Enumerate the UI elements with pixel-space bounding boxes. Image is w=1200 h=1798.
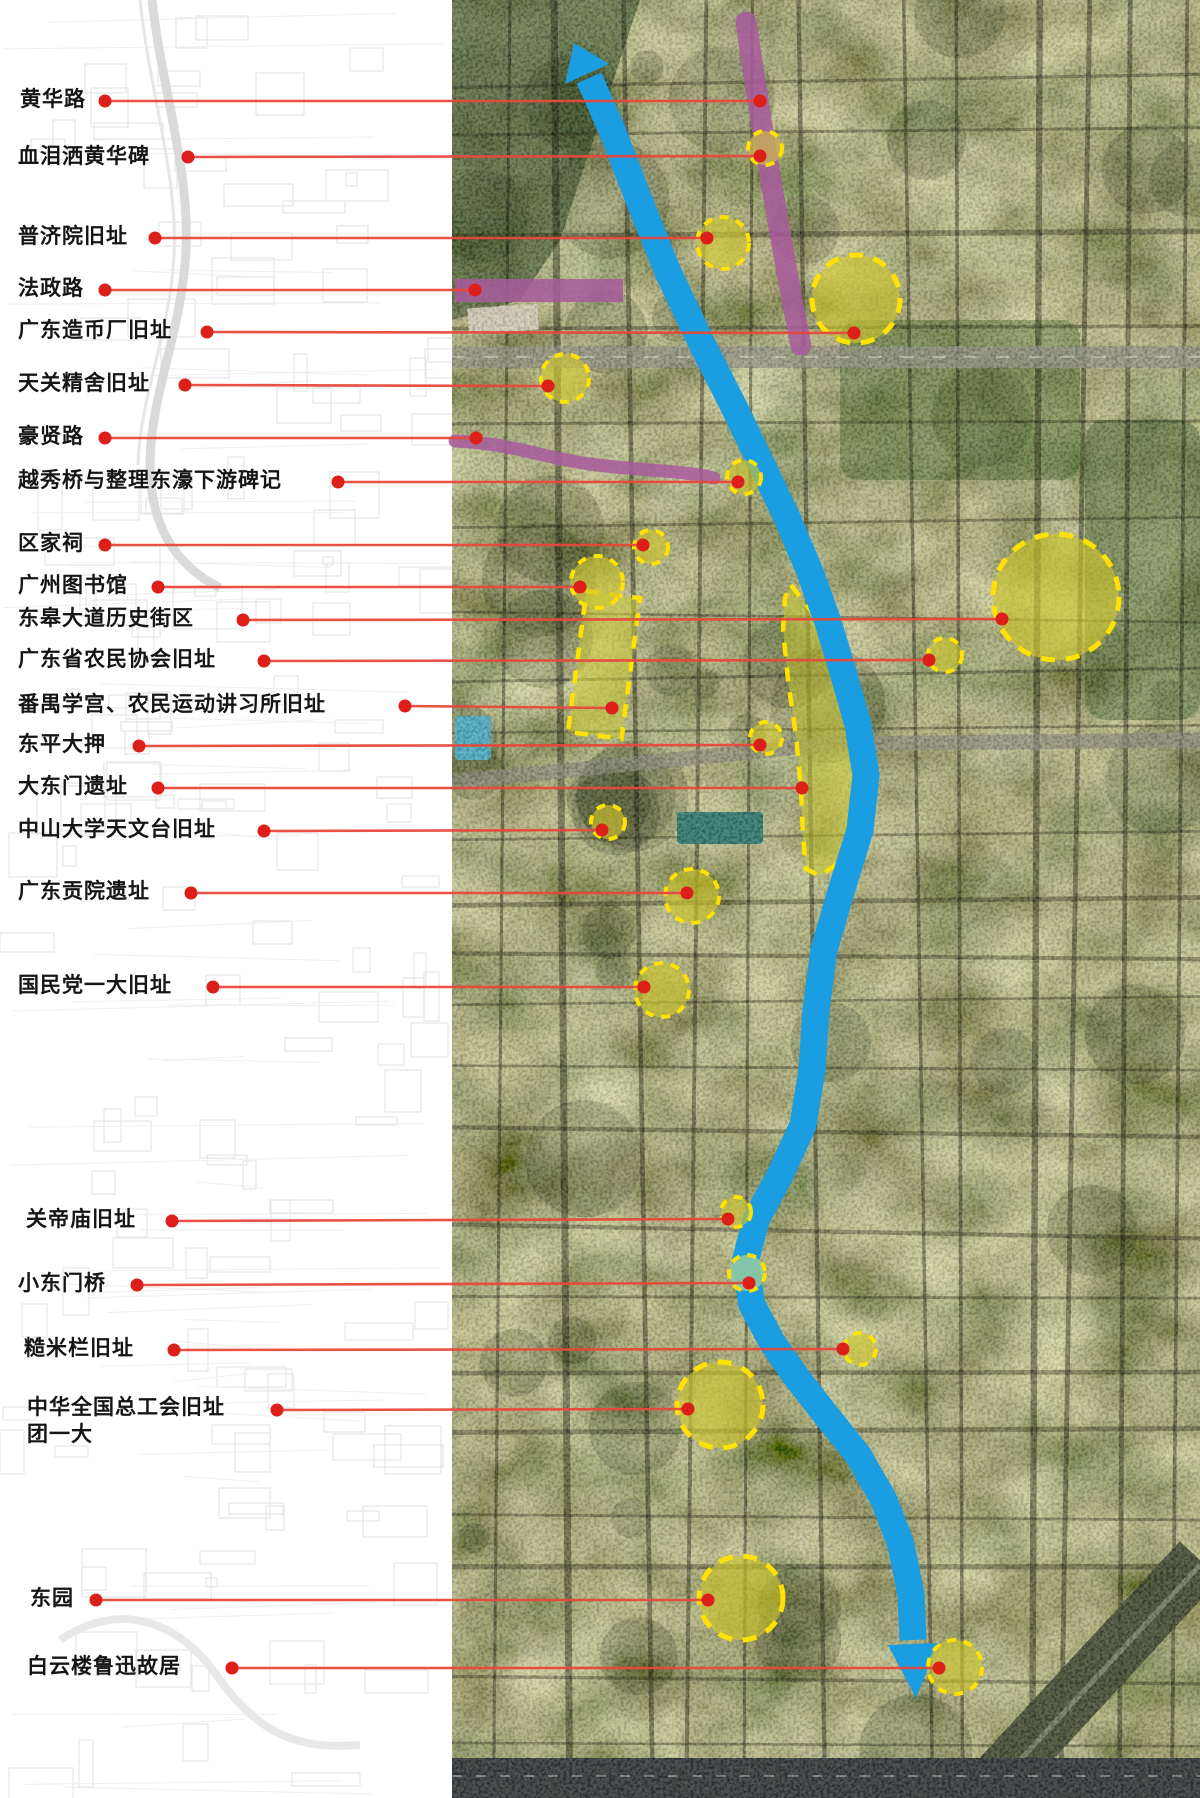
leader-line-xuelei-sa-huanghua-stele	[188, 156, 760, 157]
map-label-sysu-observatory-site: 中山大学天文台旧址	[18, 816, 216, 843]
label-dot-xiaodongmen-bridge	[131, 1279, 144, 1292]
sketch-line	[70, 563, 439, 564]
label-dot-haoxian-road	[99, 432, 112, 445]
map-label-tianguan-jingshe-site: 天关精舍旧址	[18, 370, 150, 397]
map-label-donggao-avenue-historic-district: 东皋大道历史街区	[18, 605, 194, 632]
leader-line-tianguan-jingshe-site	[185, 385, 548, 386]
map-label-caomilan-site: 糙米栏旧址	[24, 1335, 134, 1362]
leader-line-guangdong-peasant-association-site	[264, 660, 929, 661]
target-dot-oujia-ancestral-hall	[637, 539, 650, 552]
label-dot-baiyunlou-luxun-residence	[226, 1662, 239, 1675]
target-dot-fazheng-road	[469, 284, 482, 297]
target-dot-caomilan-site	[837, 1343, 850, 1356]
target-dot-baiyunlou-luxun-residence	[933, 1662, 946, 1675]
target-dot-guangdong-mint-site	[848, 327, 861, 340]
label-dot-dadongmen-ruins	[152, 782, 165, 795]
target-dot-kmt-first-congress-site	[638, 981, 651, 994]
target-dot-dongping-pawnshop	[754, 739, 767, 752]
map-graphic	[0, 0, 1200, 1798]
target-dot-guangdong-gongyuan-ruins	[681, 887, 694, 900]
label-dot-sysu-observatory-site	[258, 825, 271, 838]
map-label-haoxian-road: 豪贤路	[18, 423, 84, 450]
map-label-kmt-first-congress-site: 国民党一大旧址	[18, 972, 172, 999]
label-dot-yuexiu-bridge-stele	[332, 476, 345, 489]
label-dot-guangdong-mint-site	[201, 326, 214, 339]
label-dot-tianguan-jingshe-site	[179, 379, 192, 392]
label-dot-guangzhou-library	[152, 581, 165, 594]
leader-line-sysu-observatory-site	[264, 830, 602, 831]
map-label-xuelei-sa-huanghua-stele: 血泪洒黄华碑	[18, 143, 150, 170]
map-label-fazheng-road: 法政路	[18, 275, 84, 302]
leader-line-acftu-site	[277, 1409, 688, 1410]
target-dot-tianguan-jingshe-site	[542, 380, 555, 393]
map-label-baiyunlou-luxun-residence: 白云楼鲁迅故居	[27, 1653, 181, 1680]
map-label-guangdong-gongyuan-ruins: 广东贡院遗址	[18, 878, 150, 905]
map-label-acftu-site: 中华全国总工会旧址团一大	[27, 1394, 225, 1448]
label-dot-caomilan-site	[168, 1344, 181, 1357]
leader-line-caomilan-site	[174, 1349, 843, 1350]
map-label-guangdong-peasant-association-site: 广东省农民协会旧址	[18, 646, 216, 673]
label-dot-guangdong-peasant-association-site	[258, 655, 271, 668]
target-dot-xiaodongmen-bridge	[743, 1277, 756, 1290]
site-circle-9	[750, 722, 782, 754]
target-dot-xuelei-sa-huanghua-stele	[754, 150, 767, 163]
map-label-huanghua-road: 黄华路	[20, 86, 86, 113]
site-circle-10	[591, 805, 625, 839]
sketch-line	[12, 1714, 278, 1715]
site-circle-4	[727, 460, 761, 494]
target-dot-yuexiu-bridge-stele	[732, 476, 745, 489]
label-dot-acftu-site	[271, 1404, 284, 1417]
target-dot-huanghua-road	[754, 95, 767, 108]
map-label-xiaodongmen-bridge: 小东门桥	[18, 1270, 106, 1297]
label-dot-guandi-temple-site	[166, 1215, 179, 1228]
target-dot-donggao-avenue-historic-district	[996, 613, 1009, 626]
target-dot-haoxian-road	[470, 432, 483, 445]
site-circle-3	[541, 354, 589, 402]
label-dot-fazheng-road	[99, 284, 112, 297]
leader-line-donggao-avenue-historic-district	[243, 619, 1002, 620]
map-label-guangdong-mint-site: 广东造币厂旧址	[18, 317, 172, 344]
label-dot-dongyuan-garden	[90, 1594, 103, 1607]
map-label-pujiyuan-site: 普济院旧址	[18, 223, 128, 250]
satellite-basemap	[409, 0, 1200, 1798]
target-dot-sysu-observatory-site	[596, 824, 609, 837]
target-dot-pujiyuan-site	[701, 232, 714, 245]
label-dot-donggao-avenue-historic-district	[237, 614, 250, 627]
map-label-acftu-site-line2: 团一大	[27, 1421, 225, 1448]
map-label-panyu-xuegong-peasant-institute: 番禺学宫、农民运动讲习所旧址	[18, 691, 326, 718]
label-dot-dongping-pawnshop	[133, 740, 146, 753]
target-dot-guangdong-peasant-association-site	[923, 654, 936, 667]
leader-line-dongping-pawnshop	[139, 745, 760, 746]
sketch-line	[140, 1230, 344, 1231]
sketch-line	[168, 1005, 396, 1006]
map-canvas: 黄华路血泪洒黄华碑普济院旧址法政路广东造币厂旧址天关精舍旧址豪贤路越秀桥与整理东…	[0, 0, 1200, 1798]
map-label-yuexiu-bridge-stele: 越秀桥与整理东濠下游碑记	[18, 467, 282, 494]
target-dot-guangzhou-library	[574, 581, 587, 594]
map-label-oujia-ancestral-hall: 区家祠	[18, 530, 84, 557]
label-dot-xuelei-sa-huanghua-stele	[182, 151, 195, 164]
map-label-dongyuan-garden: 东园	[30, 1585, 74, 1612]
label-dot-oujia-ancestral-hall	[99, 539, 112, 552]
target-dot-acftu-site	[682, 1403, 695, 1416]
label-dot-pujiyuan-site	[149, 232, 162, 245]
label-dot-kmt-first-congress-site	[207, 981, 220, 994]
map-label-guangzhou-library: 广州图书馆	[18, 572, 128, 599]
target-dot-guandi-temple-site	[722, 1213, 735, 1226]
target-dot-dadongmen-ruins	[796, 782, 809, 795]
map-label-dongping-pawnshop: 东平大押	[18, 731, 106, 758]
label-dot-panyu-xuegong-peasant-institute	[399, 700, 412, 713]
label-dot-guangdong-gongyuan-ruins	[185, 887, 198, 900]
leader-line-guangdong-mint-site	[207, 332, 854, 333]
label-dot-huanghua-road	[99, 95, 112, 108]
site-circle-7	[993, 534, 1119, 660]
target-dot-dongyuan-garden	[702, 1594, 715, 1607]
map-label-guandi-temple-site: 关帝庙旧址	[26, 1206, 136, 1233]
map-label-dadongmen-ruins: 大东门遗址	[18, 773, 128, 800]
target-dot-panyu-xuegong-peasant-institute	[606, 702, 619, 715]
